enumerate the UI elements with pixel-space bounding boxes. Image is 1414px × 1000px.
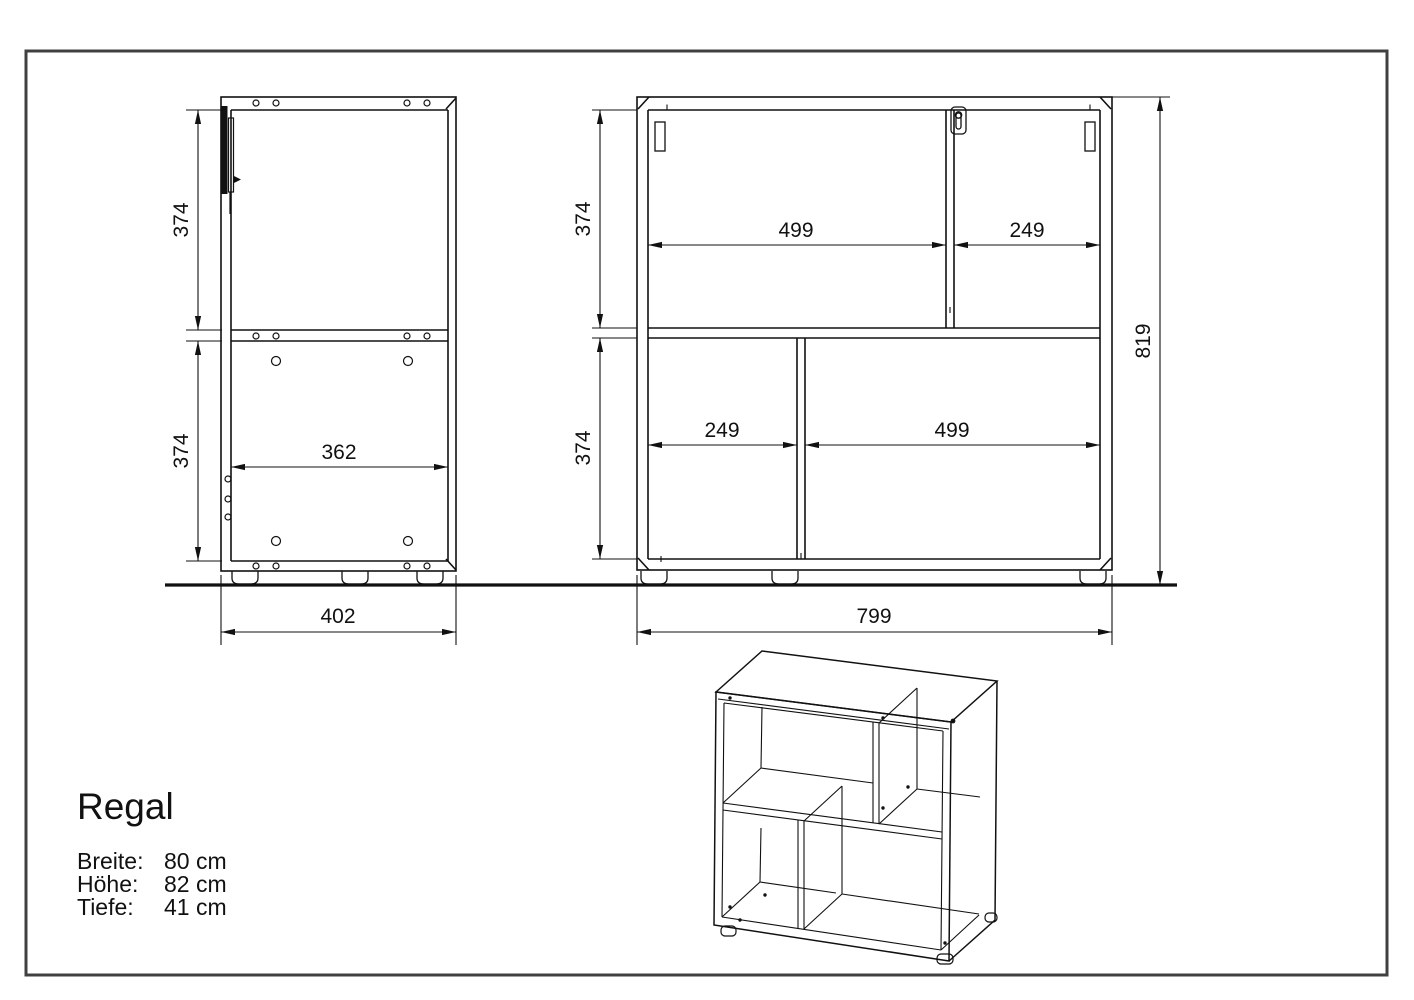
screw-hole-icons	[225, 100, 430, 569]
product-title: Regal	[77, 786, 174, 827]
dowel-tick-marks	[661, 105, 1090, 563]
side-view-feet	[232, 571, 443, 584]
spec-value-tiefe: 41 cm	[164, 894, 227, 920]
dim-front-bottom-right-width: 499	[934, 419, 969, 442]
fitting-plate-icon-left	[655, 122, 665, 151]
side-view-body	[221, 97, 456, 571]
spec-row-tiefe: Tiefe: 41 cm	[77, 894, 227, 920]
dim-front-top-right-width: 249	[1009, 219, 1044, 242]
dim-front-total-width: 799	[856, 605, 891, 628]
title-block: Regal Breite: 80 cm Höhe: 82 cm Tiefe: 4…	[77, 786, 227, 920]
dim-front-lower-height: 374	[572, 430, 595, 465]
dim-front-top-left-width: 499	[778, 219, 813, 242]
spec-label-tiefe: Tiefe:	[77, 894, 134, 920]
dim-side-upper-height: 374	[170, 202, 193, 237]
fitting-plate-icon-right	[1085, 122, 1095, 151]
front-view-feet	[641, 571, 1106, 584]
sheet-border	[26, 51, 1387, 975]
dim-side-lower-height: 374	[170, 433, 193, 468]
dim-front-upper-height: 374	[572, 201, 595, 236]
drawing-sheet: 374 374 362 402 374 374 499 249 249 499 …	[0, 0, 1414, 1000]
dim-side-total-depth: 402	[320, 605, 355, 628]
dimension-lines	[186, 97, 1170, 645]
isometric-feet	[721, 913, 997, 964]
dimension-labels: 374 374 362 402 374 374 499 249 249 499 …	[170, 201, 1155, 628]
dim-side-inner-depth: 362	[321, 441, 356, 464]
isometric-view	[714, 651, 997, 964]
dim-front-total-height: 819	[1132, 323, 1155, 358]
front-view-body	[637, 97, 1112, 570]
side-view	[221, 97, 456, 584]
dim-front-bottom-left-width: 249	[704, 419, 739, 442]
front-view	[637, 97, 1112, 584]
technical-drawing: 374 374 362 402 374 374 499 249 249 499 …	[0, 0, 1414, 1000]
